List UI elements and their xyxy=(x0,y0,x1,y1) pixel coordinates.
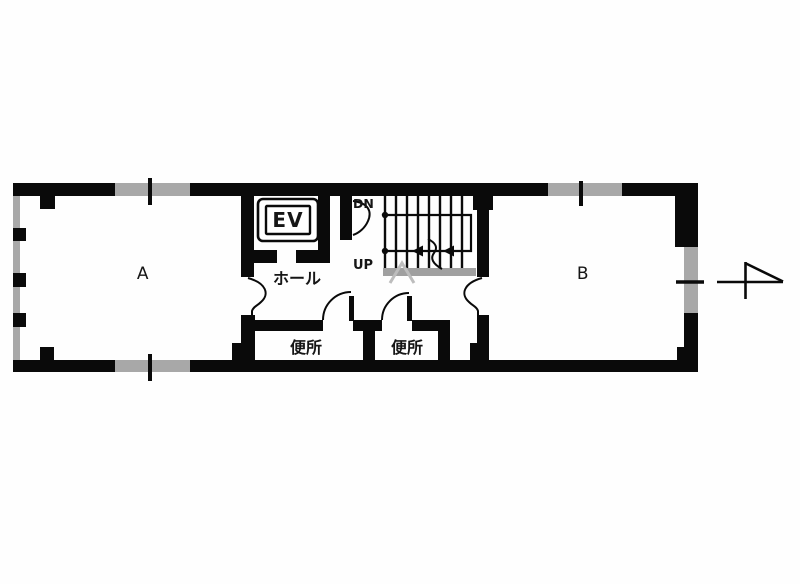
room-b-label: B xyxy=(568,264,598,284)
stair-up-label: UP xyxy=(353,258,385,273)
staircase xyxy=(385,196,471,269)
toilet-left-label: 便所 xyxy=(274,334,338,358)
toilet-right-label: 便所 xyxy=(375,334,439,358)
room-a-label: A xyxy=(128,264,158,284)
floor-plan-drawing xyxy=(0,0,800,584)
hall-label: ホール xyxy=(264,265,330,289)
floor-plan-page: A B EV DN UP ホール 便所 便所 xyxy=(0,0,800,584)
floor-number-marker xyxy=(717,262,783,299)
stair-down-label: DN xyxy=(353,196,385,211)
elevator-label: EV xyxy=(266,206,310,234)
